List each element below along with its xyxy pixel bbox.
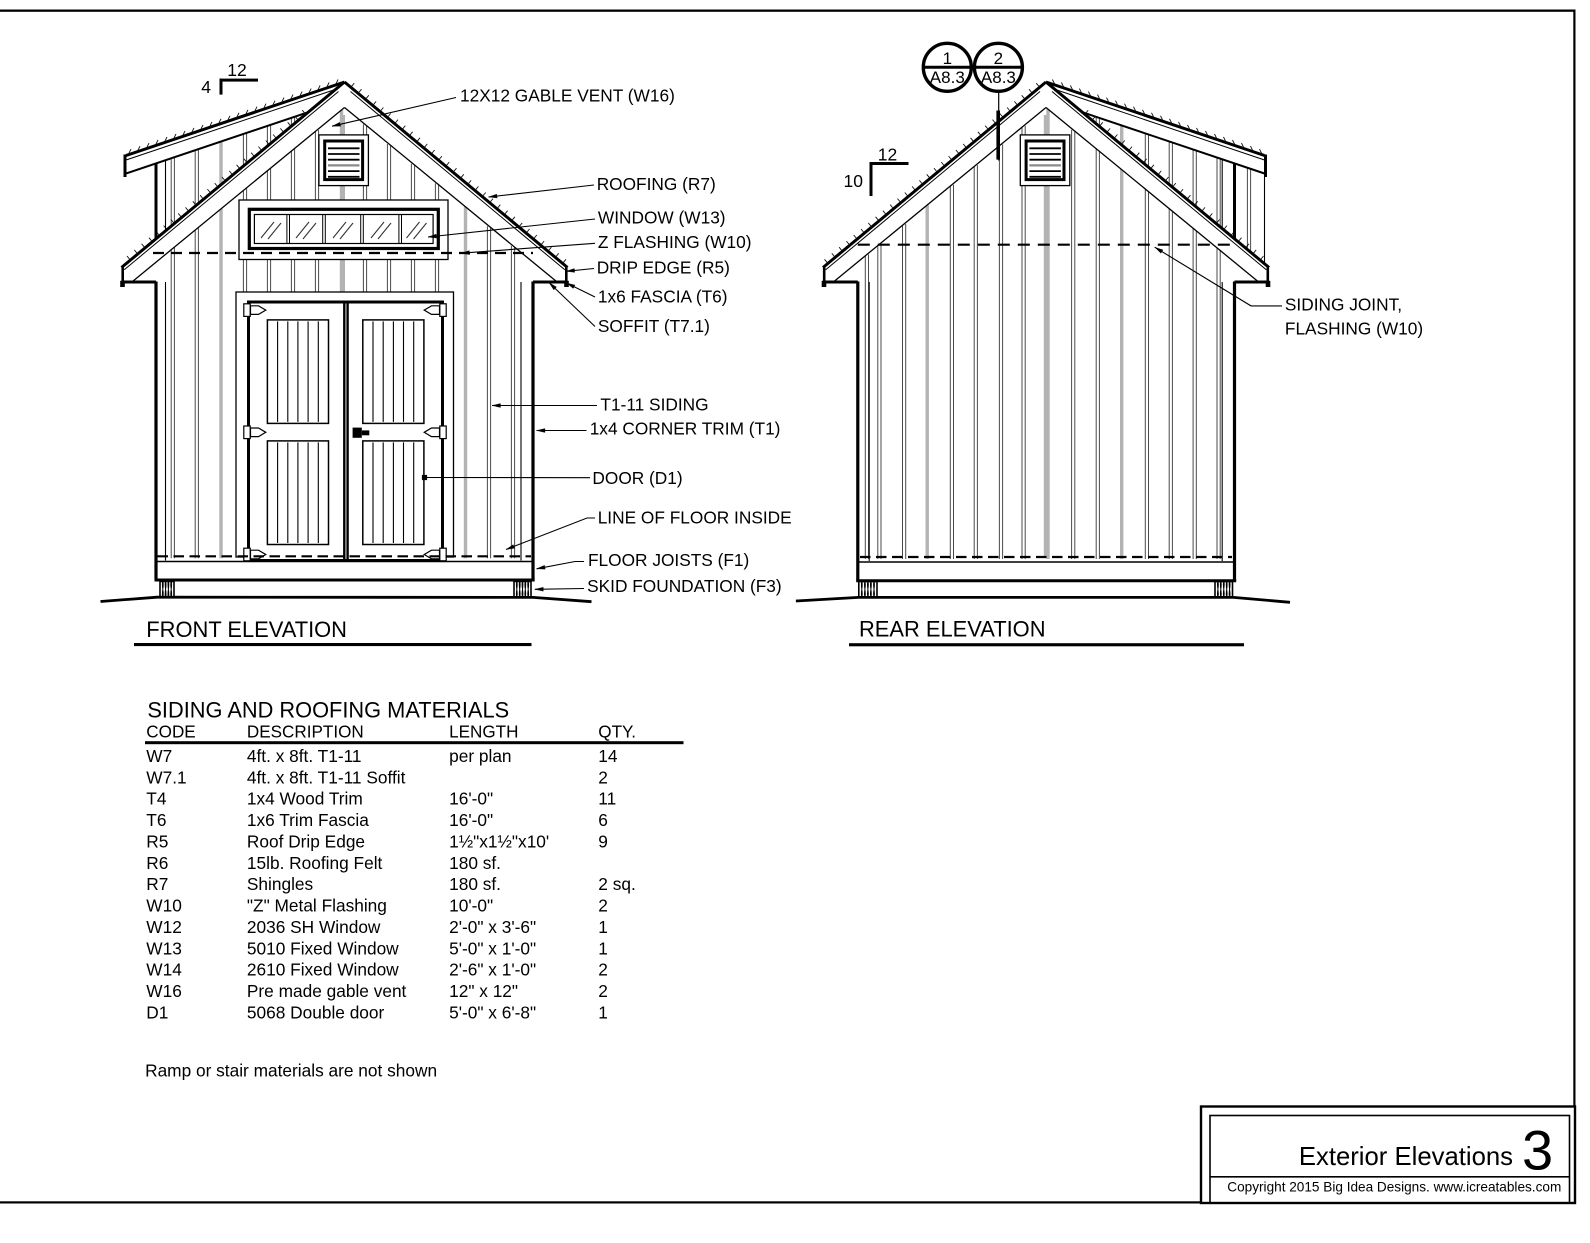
svg-text:2'-0" x 3'-6": 2'-0" x 3'-6"	[449, 917, 536, 937]
svg-text:2610 Fixed Window: 2610 Fixed Window	[247, 960, 399, 980]
svg-text:10'-0": 10'-0"	[449, 896, 493, 916]
svg-text:A8.3: A8.3	[930, 68, 965, 87]
svg-text:T4: T4	[146, 789, 167, 809]
svg-text:1x6 FASCIA (T6): 1x6 FASCIA (T6)	[598, 287, 728, 307]
svg-text:FLOOR JOISTS (F1): FLOOR JOISTS (F1)	[588, 550, 749, 570]
svg-text:T6: T6	[146, 810, 166, 830]
svg-text:A8.3: A8.3	[981, 68, 1016, 87]
svg-text:W13: W13	[146, 938, 182, 958]
svg-text:W10: W10	[146, 896, 182, 916]
svg-text:W7.1: W7.1	[146, 767, 186, 787]
svg-text:2: 2	[598, 960, 608, 980]
svg-text:12: 12	[878, 145, 897, 165]
svg-text:12X12 GABLE VENT (W16): 12X12 GABLE VENT (W16)	[460, 86, 675, 106]
svg-text:1x6 Trim Fascia: 1x6 Trim Fascia	[247, 810, 369, 830]
svg-text:4ft. x 8ft. T1-11: 4ft. x 8ft. T1-11	[247, 746, 362, 766]
svg-text:1: 1	[943, 49, 952, 68]
svg-text:W14: W14	[146, 960, 182, 980]
svg-text:DOOR (D1): DOOR (D1)	[592, 468, 682, 488]
svg-text:Exterior Elevations: Exterior Elevations	[1299, 1143, 1513, 1171]
svg-text:4: 4	[201, 77, 211, 97]
svg-text:180 sf.: 180 sf.	[449, 874, 501, 894]
svg-text:T1-11 SIDING: T1-11 SIDING	[600, 395, 708, 415]
svg-text:5'-0" x 6'-8": 5'-0" x 6'-8"	[449, 1002, 536, 1022]
svg-text:LINE OF FLOOR INSIDE: LINE OF FLOOR INSIDE	[598, 508, 792, 528]
svg-text:FLASHING (W10): FLASHING (W10)	[1285, 318, 1423, 338]
svg-text:5'-0" x 1'-0": 5'-0" x 1'-0"	[449, 938, 536, 958]
svg-text:Ramp or stair materials are no: Ramp or stair materials are not shown	[145, 1061, 437, 1081]
svg-text:16'-0": 16'-0"	[449, 789, 493, 809]
svg-text:3: 3	[1522, 1119, 1553, 1182]
svg-text:Shingles: Shingles	[247, 874, 314, 894]
svg-text:QTY.: QTY.	[598, 723, 636, 742]
svg-text:1: 1	[598, 1002, 608, 1022]
svg-text:2'-6" x 1'-0": 2'-6" x 1'-0"	[449, 960, 536, 980]
svg-text:ROOFING (R7): ROOFING (R7)	[597, 174, 716, 194]
svg-text:DRIP EDGE (R5): DRIP EDGE (R5)	[597, 258, 730, 278]
svg-text:5010 Fixed Window: 5010 Fixed Window	[247, 938, 399, 958]
svg-text:SKID FOUNDATION (F3): SKID FOUNDATION (F3)	[587, 576, 782, 596]
svg-text:R7: R7	[146, 874, 168, 894]
svg-text:per plan: per plan	[449, 746, 511, 766]
svg-text:4ft. x 8ft. T1-11 Soffit: 4ft. x 8ft. T1-11 Soffit	[247, 767, 406, 787]
svg-text:FRONT ELEVATION: FRONT ELEVATION	[146, 617, 347, 642]
svg-text:W7: W7	[146, 746, 172, 766]
svg-text:180 sf.: 180 sf.	[449, 853, 501, 873]
svg-text:Roof Drip Edge: Roof Drip Edge	[247, 832, 365, 852]
svg-text:1: 1	[598, 917, 608, 937]
svg-text:6: 6	[598, 810, 608, 830]
svg-text:SIDING JOINT,: SIDING JOINT,	[1285, 295, 1402, 315]
svg-text:2: 2	[598, 981, 608, 1001]
svg-text:2: 2	[598, 767, 608, 787]
svg-text:1: 1	[598, 938, 608, 958]
svg-text:1x4 Wood Trim: 1x4 Wood Trim	[247, 789, 363, 809]
svg-text:D1: D1	[146, 1002, 168, 1022]
svg-text:2 sq.: 2 sq.	[598, 874, 635, 894]
svg-text:14: 14	[598, 746, 618, 766]
svg-text:REAR ELEVATION: REAR ELEVATION	[859, 617, 1046, 642]
svg-text:LENGTH: LENGTH	[449, 723, 518, 742]
svg-text:SOFFIT (T7.1): SOFFIT (T7.1)	[598, 316, 710, 336]
svg-text:16'-0": 16'-0"	[449, 810, 493, 830]
svg-text:9: 9	[598, 832, 608, 852]
svg-text:W16: W16	[146, 981, 182, 1001]
svg-text:1½"x1½"x10': 1½"x1½"x10'	[449, 832, 549, 852]
svg-text:1x4 CORNER TRIM (T1): 1x4 CORNER TRIM (T1)	[590, 418, 781, 438]
svg-text:15lb. Roofing Felt: 15lb. Roofing Felt	[247, 853, 383, 873]
svg-text:SIDING AND ROOFING MATERIALS: SIDING AND ROOFING MATERIALS	[147, 698, 509, 723]
svg-text:"Z" Metal Flashing: "Z" Metal Flashing	[247, 896, 387, 916]
svg-text:2: 2	[598, 896, 608, 916]
svg-text:W12: W12	[146, 917, 182, 937]
svg-text:Copyright 2015 Big Idea Design: Copyright 2015 Big Idea Designs. www.icr…	[1227, 1180, 1561, 1195]
svg-text:12: 12	[227, 60, 246, 80]
svg-text:Pre made gable vent: Pre made gable vent	[247, 981, 407, 1001]
svg-text:11: 11	[598, 789, 616, 809]
svg-text:12" x 12": 12" x 12"	[449, 981, 518, 1001]
svg-text:5068 Double door: 5068 Double door	[247, 1002, 385, 1022]
svg-text:Z FLASHING (W10): Z FLASHING (W10)	[598, 232, 752, 252]
svg-text:WINDOW (W13): WINDOW (W13)	[598, 208, 726, 228]
svg-text:CODE: CODE	[146, 723, 195, 742]
svg-text:2: 2	[994, 49, 1003, 68]
svg-text:2036 SH Window: 2036 SH Window	[247, 917, 381, 937]
svg-text:R6: R6	[146, 853, 168, 873]
svg-text:DESCRIPTION: DESCRIPTION	[247, 723, 364, 742]
svg-text:R5: R5	[146, 832, 168, 852]
svg-text:10: 10	[844, 171, 864, 191]
